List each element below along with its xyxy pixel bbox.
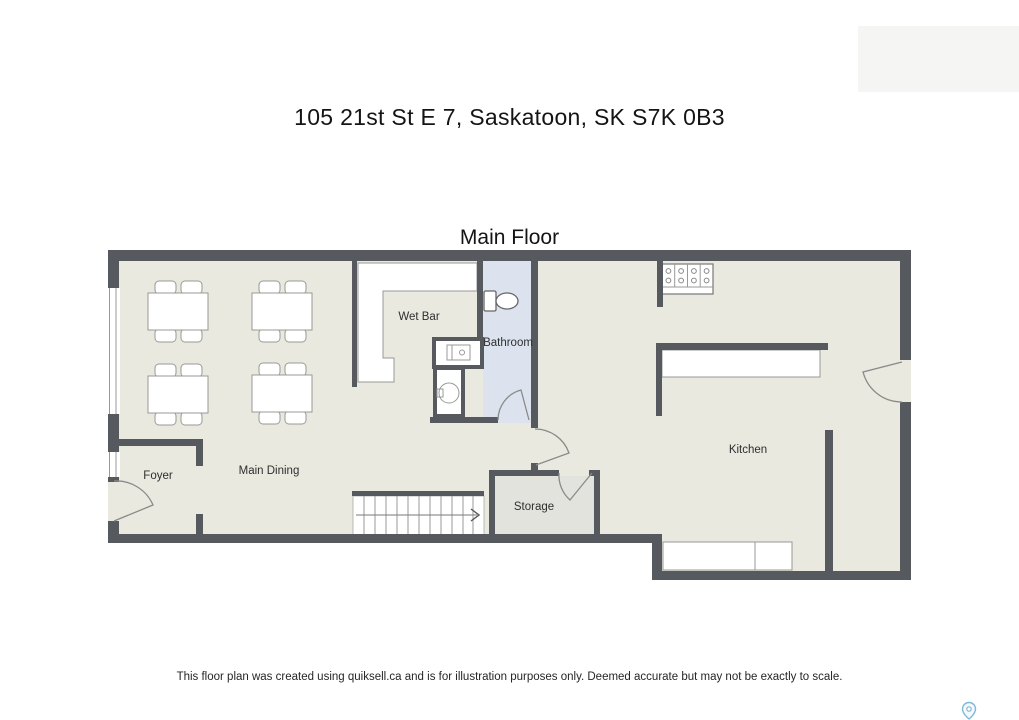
room-label-foyer: Foyer [143,470,173,482]
room-label-storage: Storage [514,501,554,513]
disclaimer-text: This floor plan was created using quikse… [0,671,1019,683]
window-foyer [105,452,120,477]
kitchen-base-cabinets [663,542,792,570]
floor-name-label: Main Floor [0,226,1019,250]
room-label-main-dining: Main Dining [239,465,300,477]
scan-artifact [858,26,1019,92]
room-label-wet-bar: Wet Bar [398,311,439,323]
kitchen-island-counter [662,350,820,377]
page-title: 105 21st St E 7, Saskatoon, SK S7K 0B3 [0,104,1019,131]
floor-plan-page: 105 21st St E 7, Saskatoon, SK S7K 0B3 M… [0,0,1019,720]
utility-basin [435,368,463,416]
room-label-kitchen: Kitchen [729,444,767,456]
map-pin-icon [963,703,976,720]
toilet-icon [484,291,518,311]
room-label-bathroom: Bathroom [483,337,533,349]
wet-bar-sink-cabinet [434,339,482,367]
staircase [352,491,484,535]
stove-icon [662,264,713,294]
window-dining [105,288,120,414]
